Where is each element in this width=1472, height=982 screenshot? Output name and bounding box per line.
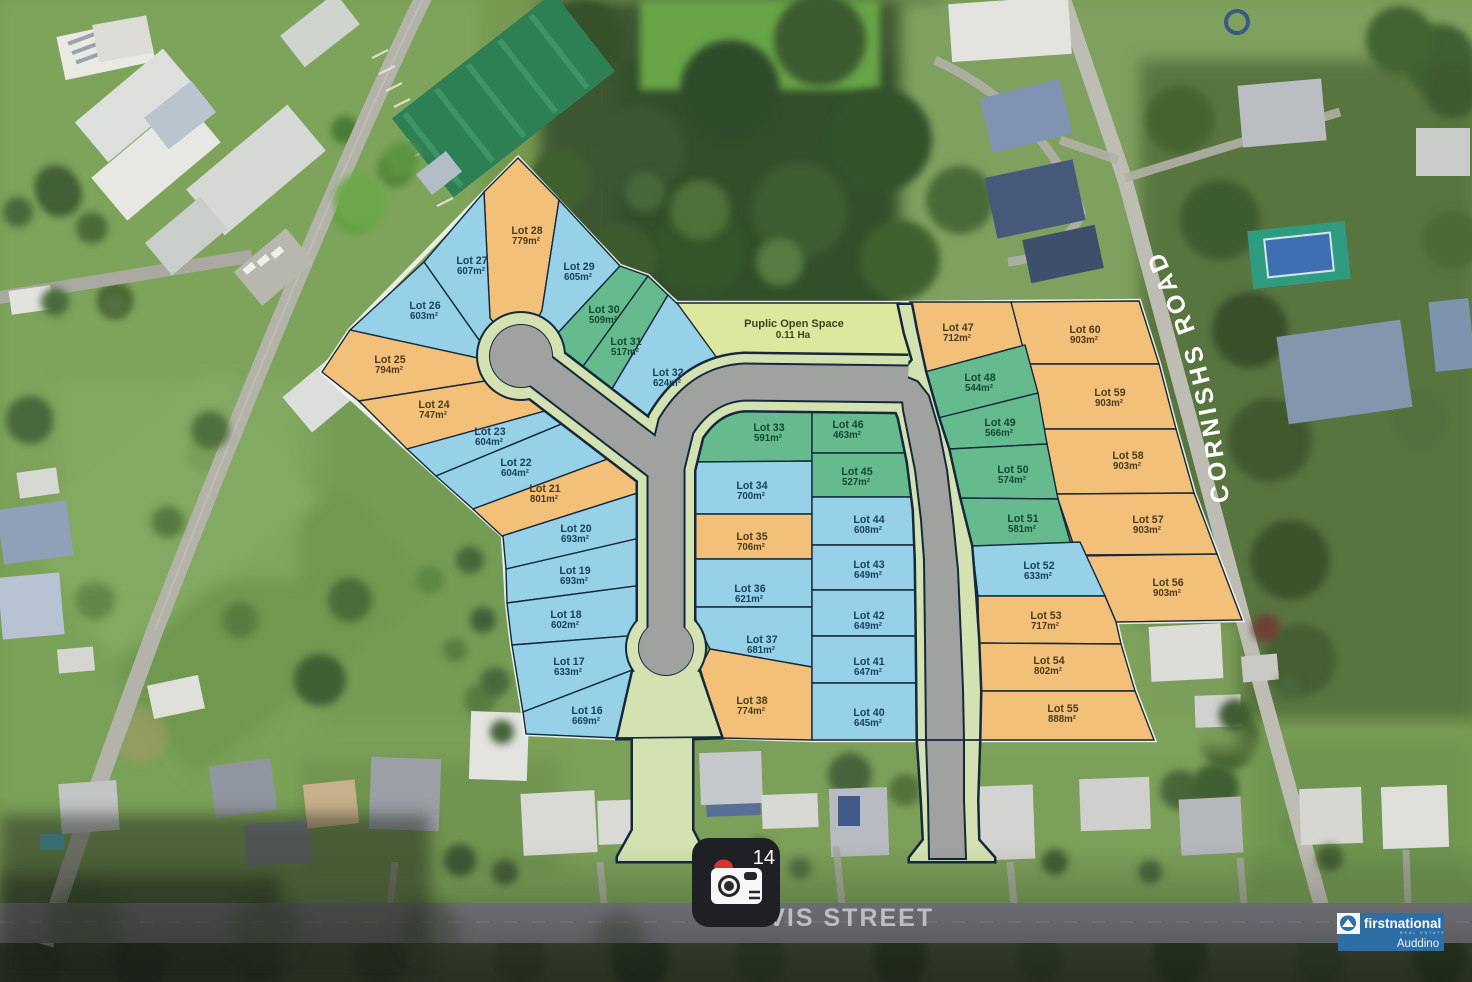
svg-text:566m²: 566m² xyxy=(985,428,1014,439)
svg-text:621m²: 621m² xyxy=(735,594,764,605)
svg-text:firstnational: firstnational xyxy=(1364,916,1441,931)
svg-text:607m²: 607m² xyxy=(457,266,486,277)
svg-text:700m²: 700m² xyxy=(737,491,766,502)
svg-text:463m²: 463m² xyxy=(833,430,862,441)
svg-text:645m²: 645m² xyxy=(854,718,883,729)
svg-text:681m²: 681m² xyxy=(747,645,776,656)
svg-text:706m²: 706m² xyxy=(737,542,766,553)
svg-text:624m²: 624m² xyxy=(653,378,682,389)
svg-text:903m²: 903m² xyxy=(1133,525,1162,536)
svg-text:608m²: 608m² xyxy=(854,525,883,536)
svg-text:712m²: 712m² xyxy=(943,333,972,344)
svg-text:802m²: 802m² xyxy=(1034,666,1063,677)
svg-text:574m²: 574m² xyxy=(998,475,1027,486)
svg-text:693m²: 693m² xyxy=(560,576,589,587)
svg-text:903m²: 903m² xyxy=(1070,335,1099,346)
svg-text:603m²: 603m² xyxy=(410,311,439,322)
svg-text:649m²: 649m² xyxy=(854,570,883,581)
svg-text:794m²: 794m² xyxy=(375,365,404,376)
svg-text:581m²: 581m² xyxy=(1008,524,1037,535)
svg-text:602m²: 602m² xyxy=(551,620,580,631)
svg-text:903m²: 903m² xyxy=(1113,461,1142,472)
svg-text:517m²: 517m² xyxy=(611,347,640,358)
svg-text:633m²: 633m² xyxy=(554,667,583,678)
svg-text:693m²: 693m² xyxy=(561,534,590,545)
svg-text:604m²: 604m² xyxy=(501,468,530,479)
svg-text:605m²: 605m² xyxy=(564,272,593,283)
svg-text:Puplic Open Space: Puplic Open Space xyxy=(744,318,844,330)
svg-text:604m²: 604m² xyxy=(475,437,504,448)
svg-text:717m²: 717m² xyxy=(1031,621,1060,632)
svg-text:544m²: 544m² xyxy=(965,383,994,394)
svg-text:647m²: 647m² xyxy=(854,667,883,678)
svg-text:14: 14 xyxy=(753,847,775,869)
svg-text:REAL ESTATE: REAL ESTATE xyxy=(1400,931,1446,935)
svg-text:779m²: 779m² xyxy=(512,236,541,247)
svg-text:0.11 Ha: 0.11 Ha xyxy=(776,330,811,341)
svg-text:747m²: 747m² xyxy=(419,410,448,421)
svg-text:527m²: 527m² xyxy=(842,477,871,488)
svg-text:903m²: 903m² xyxy=(1153,588,1182,599)
svg-text:669m²: 669m² xyxy=(572,716,601,727)
svg-text:774m²: 774m² xyxy=(737,706,766,717)
svg-text:591m²: 591m² xyxy=(754,433,783,444)
svg-text:649m²: 649m² xyxy=(854,621,883,632)
svg-text:888m²: 888m² xyxy=(1048,714,1077,725)
svg-text:903m²: 903m² xyxy=(1095,398,1124,409)
svg-text:801m²: 801m² xyxy=(530,494,559,505)
svg-text:Auddino: Auddino xyxy=(1397,938,1439,950)
svg-text:633m²: 633m² xyxy=(1024,571,1053,582)
svg-text:509m²: 509m² xyxy=(589,315,618,326)
